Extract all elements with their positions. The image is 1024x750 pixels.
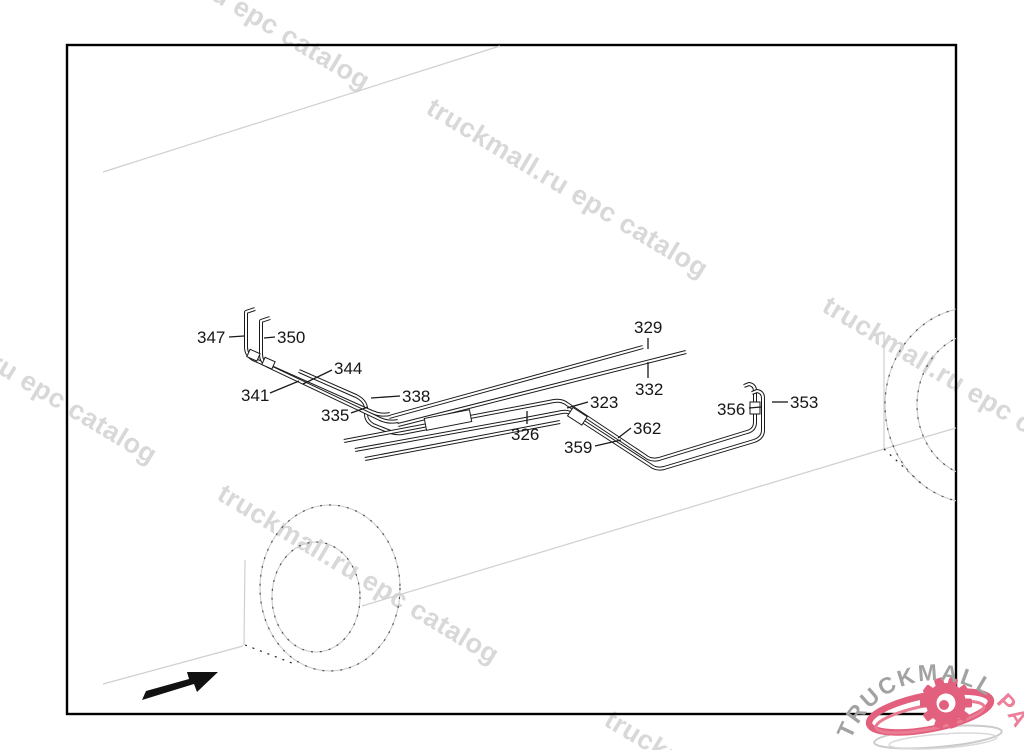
brand-logo: TRUCKMALL PARTS xyxy=(0,0,1024,750)
part-label-356: 356 xyxy=(717,400,745,420)
part-label-335: 335 xyxy=(321,406,349,426)
part-label-347: 347 xyxy=(197,328,225,348)
logo-text: TRUCKMALL PARTS xyxy=(0,0,1024,742)
leader-lines xyxy=(229,336,788,446)
wheel-arch-right xyxy=(885,307,1024,503)
frame-border xyxy=(67,45,956,714)
part-label-323: 323 xyxy=(590,393,618,413)
part-label-359: 359 xyxy=(564,438,592,458)
part-label-341: 341 xyxy=(241,386,269,406)
part-label-338: 338 xyxy=(402,387,430,407)
truck-body-lines xyxy=(103,46,1024,684)
part-label-350: 350 xyxy=(277,328,305,348)
part-label-332: 332 xyxy=(635,380,663,400)
part-label-362: 362 xyxy=(633,419,661,439)
part-label-329: 329 xyxy=(634,318,662,338)
tube-clamp xyxy=(247,349,260,361)
wheel-arch-left xyxy=(260,505,400,671)
logo-suffix-text: PARTS xyxy=(0,0,1024,733)
diagram-drawing: TRUCKMALL PARTS xyxy=(0,0,1024,750)
tube-assembly xyxy=(246,309,763,469)
part-label-344: 344 xyxy=(334,359,362,379)
parts-diagram-page: truckmall.ru epc catalog truckmall.ru ep… xyxy=(0,0,1024,750)
part-label-353: 353 xyxy=(790,393,818,413)
part-label-326: 326 xyxy=(511,425,539,445)
tube-clamp xyxy=(262,357,275,369)
direction-arrow-icon xyxy=(142,672,218,700)
